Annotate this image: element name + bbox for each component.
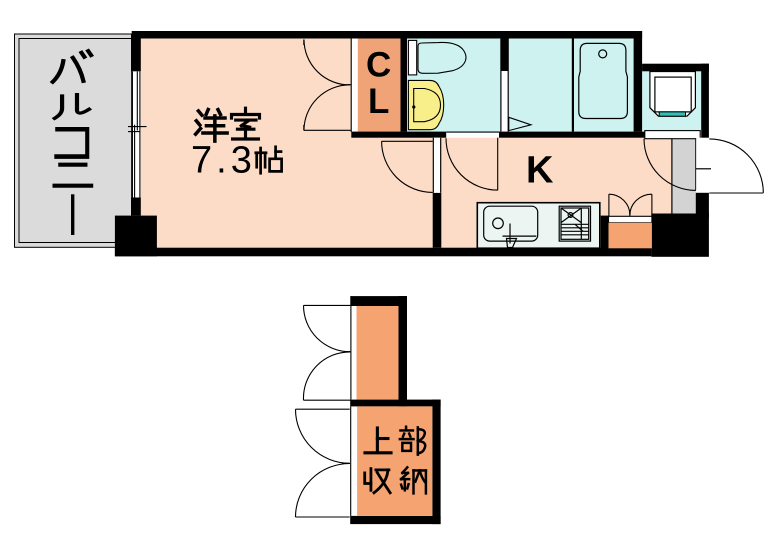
- svg-text:K: K: [526, 150, 554, 192]
- svg-text:7.3: 7.3: [191, 140, 256, 182]
- svg-text:L: L: [368, 82, 389, 121]
- svg-text:C: C: [366, 46, 391, 85]
